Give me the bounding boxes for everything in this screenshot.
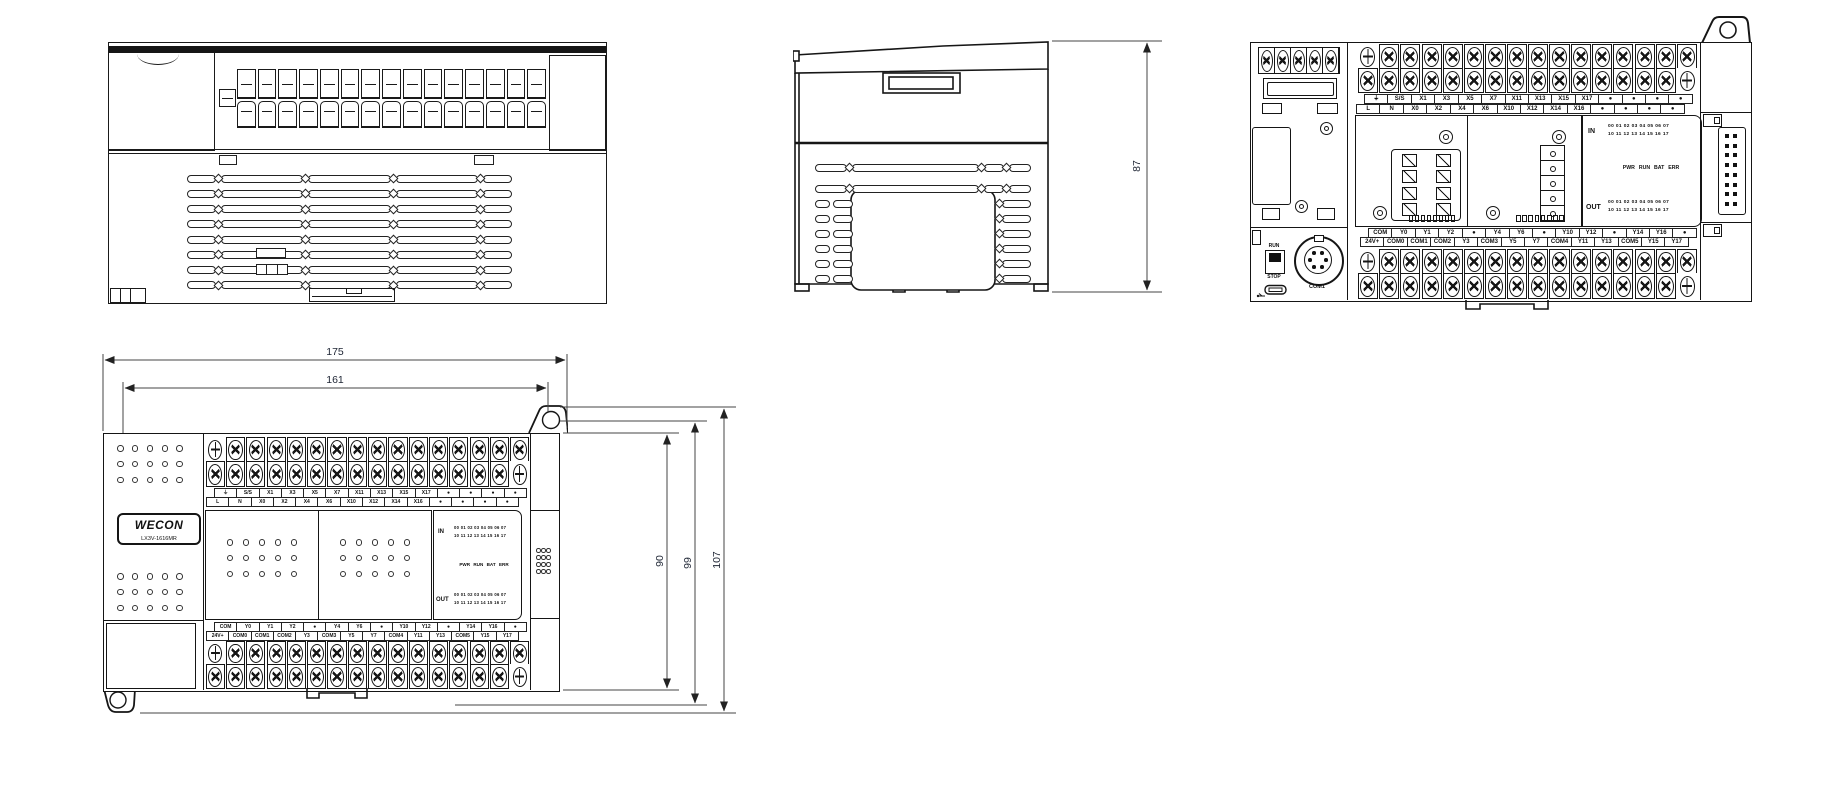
terminal-screw[interactable] [1400, 249, 1420, 274]
vent-hole [243, 571, 250, 578]
com1-connector[interactable] [1294, 236, 1344, 286]
in-led-numbers: 00 01 02 03 04 05 06 0710 11 12 13 14 15… [1608, 123, 1669, 139]
terminal-screw[interactable] [1656, 273, 1676, 299]
connector-pin [1725, 173, 1729, 177]
terminal-screw[interactable] [490, 664, 509, 689]
terminal-label: COM4 [384, 631, 407, 641]
terminal-screw[interactable] [368, 641, 387, 665]
vent-hole [147, 589, 154, 596]
vent-hole [132, 461, 139, 468]
wire-clamp [444, 101, 463, 128]
terminal-screw[interactable] [246, 437, 265, 462]
label-window [256, 264, 288, 275]
terminal-screw[interactable] [1528, 273, 1548, 299]
terminal-label: 24V+ [1360, 237, 1384, 247]
status-squares [1516, 215, 1564, 222]
vent-hole [176, 461, 183, 468]
vent-row [187, 205, 512, 214]
wire-clamp [361, 101, 380, 128]
terminal-screw[interactable] [307, 641, 326, 665]
wire-clamp [320, 101, 339, 128]
terminal-screw[interactable] [1485, 273, 1505, 299]
clip-slot [1703, 224, 1722, 237]
terminal-screw[interactable] [307, 437, 326, 462]
terminal-label: X13 [1528, 94, 1552, 104]
output-screw-row-1[interactable] [1357, 249, 1698, 274]
terminal-label: X2 [273, 497, 296, 507]
terminal-screw[interactable] [1613, 273, 1633, 299]
terminal-screw[interactable] [226, 437, 245, 462]
terminal-screw[interactable] [1485, 44, 1505, 69]
front-view-dimensioned: WECON LX3V-1616MR ⏚S/SX1X3X5X7X11X13X15X… [103, 360, 568, 716]
terminal-screw[interactable] [1635, 273, 1655, 299]
side-view [793, 38, 1050, 294]
top-edge-band [109, 46, 606, 53]
output-labels-lower: 24V+COM0COM1COM2Y3COM3Y5Y7COM4Y11Y13COM5… [207, 631, 519, 641]
terminal-screw[interactable] [1635, 249, 1655, 274]
terminal-screw[interactable] [1571, 273, 1591, 299]
terminal-screw[interactable] [429, 664, 448, 689]
vent-row [997, 214, 1031, 223]
terminal-label: COM5 [1618, 237, 1642, 247]
dim-height-body: 90 [654, 555, 666, 567]
connector-cell [1436, 187, 1451, 200]
vent-hole [176, 589, 183, 596]
vent-hole [162, 461, 169, 468]
top-view [108, 42, 607, 304]
terminal-screw[interactable] [409, 641, 428, 665]
terminal-screw[interactable] [1464, 249, 1484, 274]
input-screw-row-2[interactable] [1357, 68, 1698, 93]
vent-hole [132, 605, 139, 612]
bay-connector-5pin [1540, 145, 1565, 222]
connector-pin [1733, 153, 1737, 157]
terminal-screw[interactable] [307, 461, 326, 487]
terminal-label: ● [429, 497, 452, 507]
terminal-screw[interactable] [470, 461, 489, 487]
connector-pin [1725, 183, 1729, 187]
clip-slot [1262, 103, 1282, 114]
small-hole [546, 548, 551, 553]
battery-cover [1252, 127, 1291, 205]
connector-pin [1725, 153, 1729, 157]
terminal-screw[interactable] [1656, 44, 1676, 69]
terminal-screw[interactable] [1549, 273, 1569, 299]
terminal-label: X10 [340, 497, 363, 507]
terminal-screw[interactable] [287, 437, 306, 462]
terminal-screw[interactable] [388, 461, 407, 487]
led-panel: IN 00 01 02 03 04 05 06 0710 11 12 13 14… [1582, 115, 1702, 227]
din-clip[interactable] [302, 688, 372, 706]
left-section-divider [103, 620, 203, 621]
vent-row [187, 189, 512, 198]
input-screw-row-1[interactable] [1357, 44, 1698, 69]
out-label: OUT [436, 597, 449, 603]
vent-hole [117, 477, 124, 484]
vent-hole [147, 477, 154, 484]
terminal-screw[interactable] [1379, 68, 1399, 93]
terminal-screw[interactable] [470, 641, 489, 665]
terminal-screw[interactable] [1485, 68, 1505, 93]
clip-slot [1262, 208, 1280, 220]
terminal-screw[interactable] [267, 437, 286, 462]
terminal-screw[interactable] [307, 664, 326, 689]
terminal-label: Y15 [473, 631, 496, 641]
clip-slot [474, 155, 494, 165]
terminal-screw[interactable] [287, 641, 306, 665]
terminal-label: COM5 [451, 631, 474, 641]
terminal-label: Y17 [496, 631, 519, 641]
mount-screw [1358, 249, 1378, 274]
status-led-labels: PWR RUN BAT ERR [1607, 165, 1695, 171]
terminal-label: X16 [1567, 104, 1591, 114]
terminal-label: ● [1622, 94, 1646, 104]
vent-row [815, 199, 853, 208]
terminal-screw[interactable] [1592, 68, 1612, 93]
terminal-screw[interactable] [327, 437, 346, 462]
terminal-screw[interactable] [1549, 44, 1569, 69]
terminal-screw[interactable] [449, 664, 468, 689]
terminal-screw[interactable] [510, 437, 529, 462]
terminal-screw[interactable] [1507, 68, 1527, 93]
vent-hole [388, 555, 395, 562]
terminal-screw[interactable] [206, 461, 225, 487]
terminal-screw[interactable] [490, 641, 509, 665]
connector-pin [1733, 163, 1737, 167]
cover-screw [1295, 200, 1308, 213]
mount-screw [1358, 44, 1378, 69]
clip-slot [1252, 230, 1261, 245]
terminal-screw[interactable] [409, 664, 428, 689]
terminal-screw[interactable] [1528, 68, 1548, 93]
vent-hole [243, 555, 250, 562]
terminal-screw[interactable] [510, 641, 529, 665]
terminal-label: COM1 [251, 631, 274, 641]
vent-hole [388, 571, 395, 578]
terminal-screw[interactable] [1422, 44, 1442, 69]
terminal-screw[interactable] [1528, 44, 1548, 69]
connector-pin [1733, 192, 1737, 196]
vent-hole [132, 573, 139, 580]
terminal-screw[interactable] [1677, 44, 1697, 69]
terminal-screw[interactable] [267, 641, 286, 665]
vent-hole [404, 571, 411, 578]
terminal-screw[interactable] [1507, 44, 1527, 69]
mount-screw [206, 641, 225, 665]
mount-screw [1677, 273, 1697, 299]
terminal-screw[interactable] [1571, 44, 1591, 69]
terminal-label: Y11 [1571, 237, 1595, 247]
connector-cell [1402, 170, 1417, 183]
vent-row [815, 214, 853, 223]
small-hole [541, 548, 546, 553]
top-right-cover [549, 55, 606, 151]
vent-hole [340, 539, 347, 546]
terminal-screw[interactable] [1656, 68, 1676, 93]
terminal-screw[interactable] [246, 664, 265, 689]
terminal-screw[interactable] [1400, 68, 1420, 93]
vent-row [997, 274, 1031, 283]
terminal-label: ● [1645, 94, 1669, 104]
left-section-divider [1250, 227, 1347, 228]
terminal-screw[interactable] [470, 437, 489, 462]
terminal-screw[interactable] [368, 437, 387, 462]
terminal-screw[interactable] [1443, 68, 1463, 93]
vent-hole [291, 555, 298, 562]
mount-screw [206, 437, 225, 462]
terminal-screw[interactable] [1635, 44, 1655, 69]
bay-screw [1439, 130, 1453, 144]
right-column [1700, 42, 1751, 300]
terminal-screw[interactable] [327, 641, 346, 665]
input-screw-row-1[interactable] [205, 437, 530, 462]
vent-hole [176, 477, 183, 484]
terminal-label: X7 [1481, 94, 1505, 104]
wire-clamp [527, 101, 546, 128]
vent-hole [162, 573, 169, 580]
terminal-screw[interactable] [470, 664, 489, 689]
out-led-numbers: 00 01 02 03 04 05 06 0710 11 12 13 14 15… [454, 591, 506, 606]
vent-hole [275, 555, 282, 562]
terminal-screw[interactable] [267, 461, 286, 487]
run-label: RUN [1262, 243, 1286, 249]
terminal-screw[interactable] [388, 437, 407, 462]
terminal-screw[interactable] [1464, 273, 1484, 299]
input-screw-row-2[interactable] [205, 461, 530, 487]
vent-row [997, 244, 1031, 253]
vent-hole [176, 605, 183, 612]
terminal-screw[interactable] [267, 664, 286, 689]
terminal-screw[interactable] [1592, 273, 1612, 299]
terminal-screw[interactable] [246, 641, 265, 665]
usb-port-icon[interactable] [1256, 284, 1288, 298]
terminal-screw[interactable] [246, 461, 265, 487]
terminal-screw[interactable] [449, 437, 468, 462]
wire-clamp [320, 69, 339, 99]
connector-pin [1725, 202, 1729, 206]
power-terminal [1307, 48, 1323, 73]
vent-row [815, 244, 853, 253]
terminal-screw[interactable] [1549, 249, 1569, 274]
terminal-screw[interactable] [429, 641, 448, 665]
output-screw-row-2[interactable] [1357, 273, 1698, 299]
terminal-label: L [206, 497, 229, 507]
connector-cell [1402, 154, 1417, 167]
small-hole [536, 569, 541, 574]
terminal-label: Y13 [429, 631, 452, 641]
terminal-screw[interactable] [1592, 44, 1612, 69]
terminal-screw[interactable] [206, 664, 225, 689]
terminal-screw[interactable] [1613, 68, 1633, 93]
terminal-screw[interactable] [388, 641, 407, 665]
terminal-label: ● [1668, 94, 1692, 104]
finger-notch [137, 52, 179, 65]
terminal-screw[interactable] [388, 664, 407, 689]
terminal-screw[interactable] [1464, 68, 1484, 93]
terminal-screw[interactable] [1400, 44, 1420, 69]
terminal-label: ● [473, 497, 496, 507]
wire-clamp [486, 69, 505, 99]
vent-hole [259, 539, 266, 546]
terminal-label: X14 [384, 497, 407, 507]
terminal-screw[interactable] [449, 641, 468, 665]
mount-screw [510, 461, 529, 487]
terminal-screw[interactable] [226, 461, 245, 487]
expansion-bay-1 [1355, 115, 1469, 227]
terminal-label: X3 [1434, 94, 1458, 104]
terminal-screw[interactable] [1677, 249, 1697, 274]
output-screw-row-2[interactable] [205, 664, 530, 689]
connector-cell [1436, 154, 1451, 167]
terminal-screw[interactable] [327, 664, 346, 689]
side-vent-rows-left [815, 199, 853, 283]
terminal-screw[interactable] [1422, 249, 1442, 274]
bottom-cover [106, 623, 196, 689]
terminal-screw[interactable] [409, 461, 428, 487]
terminal-screw[interactable] [490, 437, 509, 462]
in-label: IN [438, 529, 444, 535]
terminal-screw[interactable] [327, 461, 346, 487]
terminal-screw[interactable] [1528, 249, 1548, 274]
terminal-screw[interactable] [1635, 68, 1655, 93]
speaker-holes [536, 548, 551, 574]
terminal-screw[interactable] [1464, 44, 1484, 69]
terminal-label: S/S [1387, 94, 1411, 104]
terminal-screw[interactable] [368, 461, 387, 487]
vent-hole [243, 539, 250, 546]
terminal-screw[interactable] [1571, 68, 1591, 93]
out-label: OUT [1586, 204, 1601, 211]
mount-ear-top-right [528, 404, 568, 433]
vent-hole [117, 461, 124, 468]
terminal-screw[interactable] [1358, 273, 1378, 299]
terminal-screw[interactable] [429, 437, 448, 462]
bay-screw [1373, 206, 1387, 220]
power-terminal [1323, 48, 1339, 73]
run-stop-switch[interactable] [1265, 250, 1285, 274]
vent-hole [275, 539, 282, 546]
terminal-screw[interactable] [1400, 273, 1420, 299]
top-clamp-row-1 [236, 69, 547, 99]
terminal-label: COM2 [1430, 237, 1454, 247]
mount-screw [510, 664, 529, 689]
terminal-screw[interactable] [490, 461, 509, 487]
wire-clamp [403, 69, 422, 99]
vent-hole [275, 571, 282, 578]
terminal-screw[interactable] [348, 461, 367, 487]
terminal-screw[interactable] [1379, 249, 1399, 274]
terminal-screw[interactable] [1507, 273, 1527, 299]
terminal-label: X11 [1505, 94, 1529, 104]
terminal-label: COM0 [228, 631, 251, 641]
terminal-label: X6 [317, 497, 340, 507]
terminal-label: COM3 [1477, 237, 1501, 247]
terminal-screw[interactable] [1379, 273, 1399, 299]
mount-ear-top-right [1700, 16, 1752, 44]
wire-clamp [237, 69, 256, 99]
terminal-label: Y7 [1524, 237, 1548, 247]
terminal-screw[interactable] [1613, 44, 1633, 69]
terminal-screw[interactable] [409, 437, 428, 462]
terminal-screw[interactable] [1485, 249, 1505, 274]
small-hole [546, 562, 551, 567]
terminal-screw[interactable] [287, 461, 306, 487]
wire-clamp [341, 101, 360, 128]
vent-hole [291, 539, 298, 546]
wire-clamp [382, 69, 401, 99]
connector-pin [1725, 144, 1729, 148]
terminal-screw[interactable] [1571, 249, 1591, 274]
terminal-screw[interactable] [449, 461, 468, 487]
terminal-screw[interactable] [348, 437, 367, 462]
terminal-screw[interactable] [429, 461, 448, 487]
mini-clamp [219, 89, 236, 107]
terminal-screw[interactable] [1422, 273, 1442, 299]
power-terminal [1259, 48, 1275, 73]
output-screw-row-1[interactable] [205, 641, 530, 665]
pin-cell [1541, 191, 1564, 206]
terminal-screw[interactable] [1443, 249, 1463, 274]
status-led-labels: PWR RUN BAT ERR [452, 562, 516, 567]
terminal-screw[interactable] [226, 664, 245, 689]
terminal-screw[interactable] [1549, 68, 1569, 93]
terminal-screw[interactable] [368, 664, 387, 689]
small-hole [536, 548, 541, 553]
terminal-screw[interactable] [1443, 273, 1463, 299]
terminal-screw[interactable] [1379, 44, 1399, 69]
input-labels-lower: LNX0X2X4X6X10X12X14X16●●●● [1357, 104, 1685, 114]
terminal-screw[interactable] [226, 641, 245, 665]
din-clip-top [309, 288, 395, 302]
expansion-connector[interactable] [1718, 127, 1746, 215]
vent-hole [176, 445, 183, 452]
vent-hole [162, 589, 169, 596]
terminal-screw[interactable] [1613, 249, 1633, 274]
terminal-screw[interactable] [287, 664, 306, 689]
right-column [530, 433, 559, 690]
terminal-label: ● [1660, 104, 1684, 114]
terminal-label: Y15 [1641, 237, 1665, 247]
wire-clamp [507, 69, 526, 99]
terminal-screw[interactable] [1358, 68, 1378, 93]
wire-clamp [341, 69, 360, 99]
terminal-label: L [1356, 104, 1380, 114]
terminal-screw[interactable] [1656, 249, 1676, 274]
terminal-screw[interactable] [348, 641, 367, 665]
terminal-screw[interactable] [1422, 68, 1442, 93]
terminal-label: ● [1598, 94, 1622, 104]
vent-hole-grid [113, 445, 187, 483]
small-hole [541, 569, 546, 574]
terminal-screw[interactable] [1507, 249, 1527, 274]
bay-screw [1486, 206, 1500, 220]
clip-slot [219, 155, 237, 165]
terminal-label: X14 [1543, 104, 1567, 114]
cable-cover [109, 53, 215, 151]
terminal-label: X16 [407, 497, 430, 507]
side-vent-rows-top [815, 163, 1031, 193]
output-labels-lower: 24V+COM0COM1COM2Y3COM3Y5Y7COM4Y11Y13COM5… [1361, 237, 1689, 247]
din-clip[interactable] [1462, 300, 1552, 314]
terminal-screw[interactable] [348, 664, 367, 689]
vent-row [997, 229, 1031, 238]
connector-pin [1725, 134, 1729, 138]
vent-row [187, 220, 512, 229]
terminal-screw[interactable] [1443, 44, 1463, 69]
terminal-screw[interactable] [1592, 249, 1612, 274]
wire-clamp [278, 101, 297, 128]
vent-hole [372, 555, 379, 562]
